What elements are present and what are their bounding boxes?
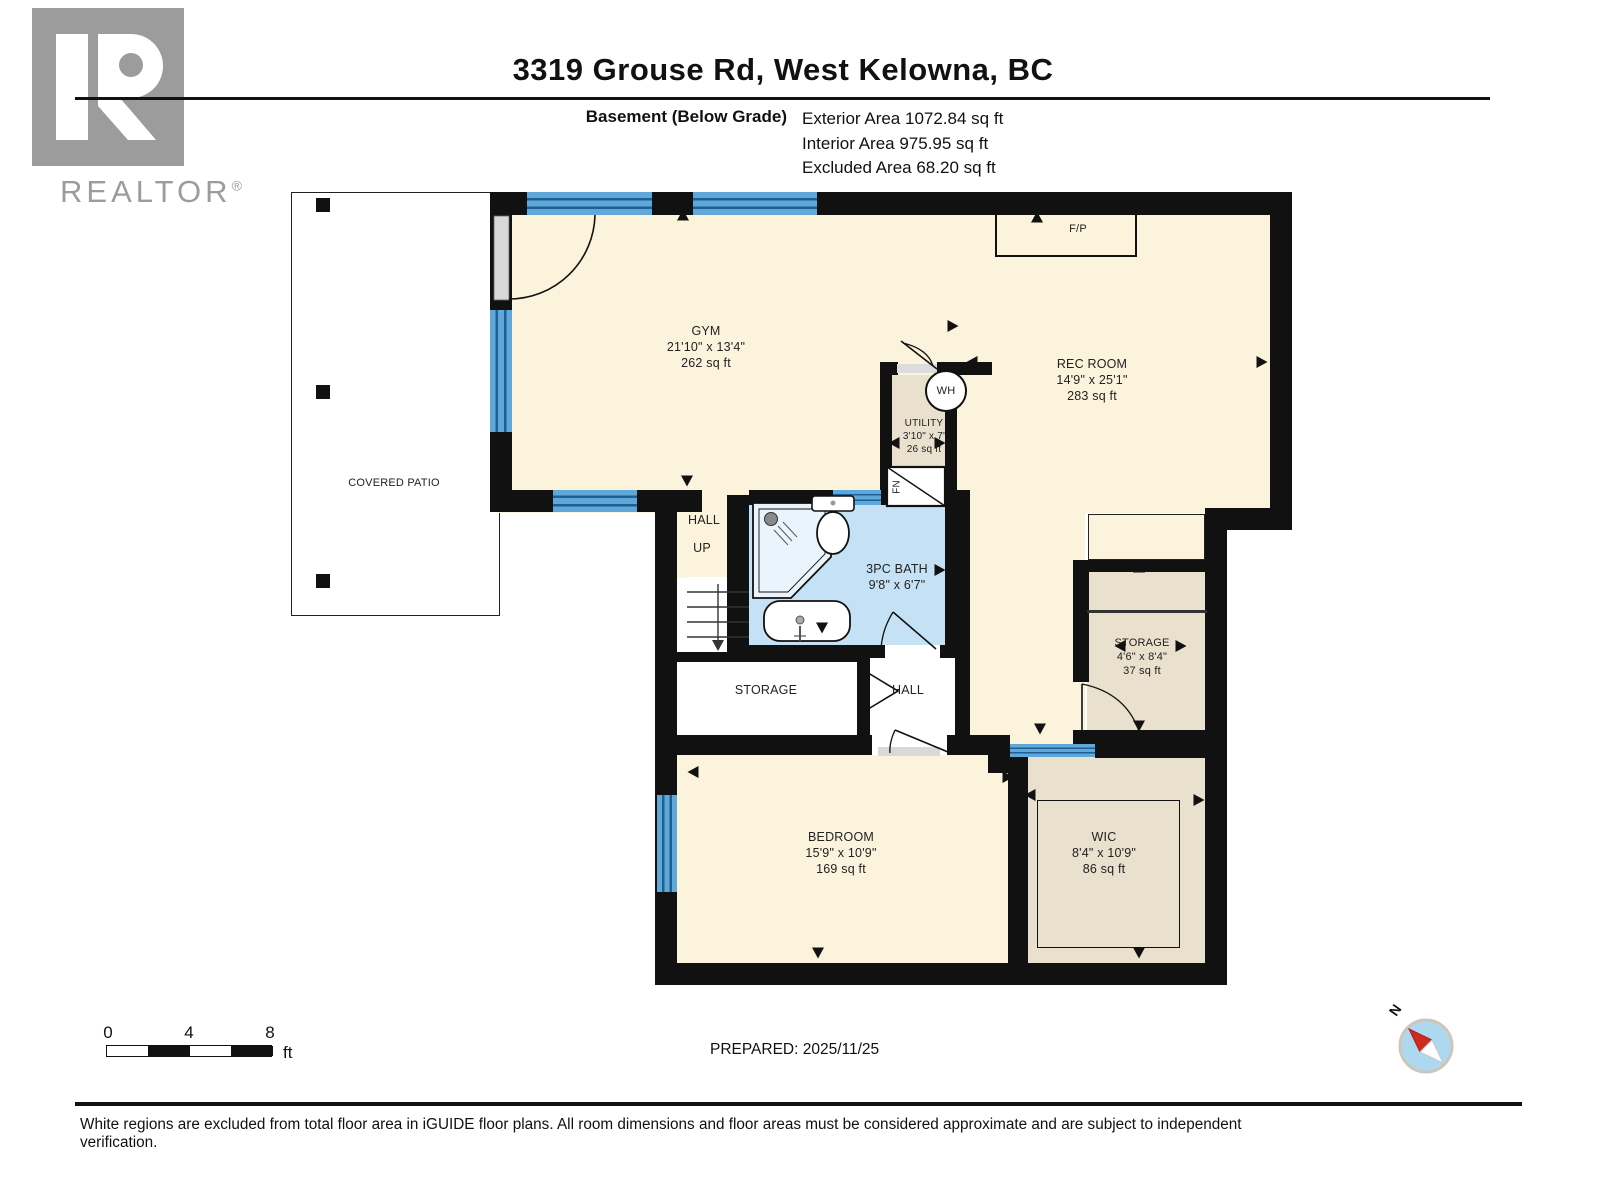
storage-left-label: STORAGE bbox=[735, 682, 797, 698]
direction-arrow-icon bbox=[688, 766, 699, 778]
direction-arrow-icon bbox=[1025, 789, 1036, 801]
direction-arrow-icon bbox=[1133, 948, 1145, 959]
prepared-date: PREPARED: 2025/11/25 bbox=[710, 1041, 879, 1059]
direction-arrow-icon bbox=[812, 742, 824, 753]
disclaimer-text: White regions are excluded from total fl… bbox=[80, 1116, 1260, 1152]
wic-label: WIC8'4" x 10'9"86 sq ft bbox=[1072, 829, 1136, 877]
direction-arrow-icon bbox=[677, 210, 689, 221]
direction-arrow-icon bbox=[812, 948, 824, 959]
sink-icon bbox=[764, 601, 850, 641]
direction-arrow-icon bbox=[1151, 735, 1163, 746]
hall-lower-label: HALL bbox=[892, 682, 924, 698]
scale-unit: ft bbox=[283, 1043, 292, 1063]
scale-tick-0: 0 bbox=[103, 1023, 112, 1043]
bath-label: 3PC BATH9'8" x 6'7" bbox=[866, 561, 928, 593]
door-arc-icon bbox=[881, 612, 893, 649]
hall-upper-label: HALL bbox=[688, 512, 720, 528]
direction-arrow-icon bbox=[1194, 794, 1205, 806]
direction-arrow-icon bbox=[935, 437, 946, 449]
stairs-arrow-icon bbox=[712, 640, 724, 651]
scale-tick-4: 4 bbox=[184, 1023, 193, 1043]
direction-arrow-icon bbox=[948, 320, 959, 332]
direction-arrow-icon bbox=[681, 476, 693, 487]
direction-arrow-icon bbox=[1003, 771, 1014, 783]
rec-room-label: REC ROOM14'9" x 25'1"283 sq ft bbox=[1056, 356, 1127, 404]
floorplan-page: REALTOR® 3319 Grouse Rd, West Kelowna, B… bbox=[0, 0, 1600, 1200]
direction-arrow-icon bbox=[1034, 724, 1046, 735]
direction-arrow-icon bbox=[1257, 356, 1268, 368]
scale-bar bbox=[106, 1045, 272, 1057]
direction-arrow-icon bbox=[1133, 562, 1145, 573]
faucet-icon bbox=[796, 616, 804, 624]
door-sill-icon bbox=[878, 747, 940, 756]
direction-arrow-icon bbox=[935, 564, 946, 576]
bedroom-label: BEDROOM15'9" x 10'9"169 sq ft bbox=[805, 829, 876, 877]
footer-divider bbox=[75, 1102, 1522, 1106]
realtor-logo-text: REALTOR® bbox=[60, 174, 242, 210]
direction-arrow-icon bbox=[1176, 640, 1187, 652]
door-sill-icon bbox=[897, 364, 937, 373]
furnace-label: FN bbox=[892, 480, 905, 494]
title-divider bbox=[75, 97, 1490, 100]
stairs-icon bbox=[687, 584, 749, 641]
direction-arrow-icon bbox=[889, 437, 900, 449]
scale-tick-8: 8 bbox=[265, 1023, 274, 1043]
direction-arrow-icon bbox=[1031, 212, 1043, 223]
shower-head-icon bbox=[765, 513, 778, 526]
direction-arrow-icon bbox=[1133, 721, 1145, 732]
direction-arrow-icon bbox=[967, 356, 978, 368]
door-leaf-icon bbox=[893, 612, 936, 649]
water-heater-label: WH bbox=[937, 384, 956, 398]
door-arc-icon bbox=[509, 215, 595, 299]
up-label: UP bbox=[693, 540, 711, 556]
fireplace-label: F/P bbox=[1069, 222, 1087, 236]
realtor-logo-icon: REALTOR® bbox=[32, 8, 184, 166]
gym-label: GYM21'10" x 13'4"262 sq ft bbox=[667, 323, 745, 371]
door-arc-icon bbox=[1082, 684, 1140, 734]
compass-icon bbox=[1400, 1020, 1452, 1072]
door-leaf-icon bbox=[494, 216, 509, 300]
direction-arrow-icon bbox=[1115, 640, 1126, 652]
direction-arrow-icon bbox=[816, 623, 828, 634]
toilet-bowl-icon bbox=[817, 512, 849, 554]
covered-patio-label: COVERED PATIO bbox=[348, 476, 439, 490]
